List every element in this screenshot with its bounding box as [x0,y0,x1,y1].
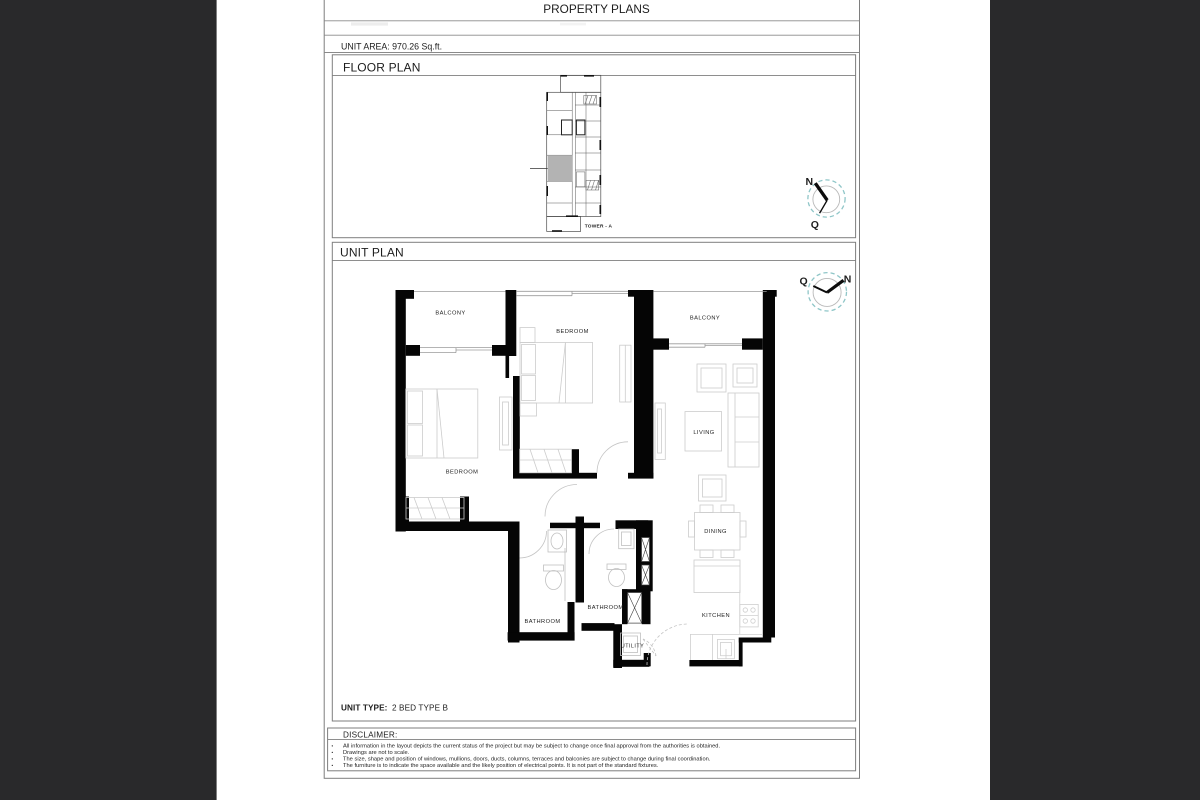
svg-text:The furniture is to indicate t: The furniture is to indicate the space a… [343,763,659,769]
svg-text:UNIT TYPE:: UNIT TYPE: [341,704,388,713]
svg-text:UTILITY: UTILITY [621,644,644,650]
svg-text:BEDROOM: BEDROOM [556,329,589,335]
svg-text:Q: Q [811,219,819,231]
svg-text:Q: Q [800,276,808,288]
svg-text:LIVING: LIVING [693,430,714,436]
svg-text:BATHROOM: BATHROOM [587,605,623,611]
svg-text:UNIT AREA: 970.26 Sq.ft.: UNIT AREA: 970.26 Sq.ft. [341,41,442,51]
svg-text:DISCLAIMER:: DISCLAIMER: [343,730,398,739]
svg-text:FLOOR PLAN: FLOOR PLAN [343,61,421,75]
svg-text:BEDROOM: BEDROOM [446,469,479,475]
svg-text:BALCONY: BALCONY [435,311,465,317]
svg-text:N: N [844,273,852,285]
svg-text:All information in the layout: All information in the layout depicts th… [343,743,720,749]
svg-text:Drawings are not to scale.: Drawings are not to scale. [343,750,410,756]
svg-text:KITCHEN: KITCHEN [702,613,730,619]
svg-text:N: N [806,176,814,188]
svg-text:BATHROOM: BATHROOM [524,619,560,625]
svg-text:BALCONY: BALCONY [690,316,720,322]
svg-text:UNIT PLAN: UNIT PLAN [340,246,404,260]
svg-text:2 BED TYPE B: 2 BED TYPE B [392,704,449,713]
svg-text:TOWER - A: TOWER - A [585,223,613,229]
svg-text:DINING: DINING [704,529,727,535]
svg-text:PROPERTY PLANS: PROPERTY PLANS [543,2,650,16]
svg-text:The size, shape and position o: The size, shape and position of windows,… [343,756,711,762]
